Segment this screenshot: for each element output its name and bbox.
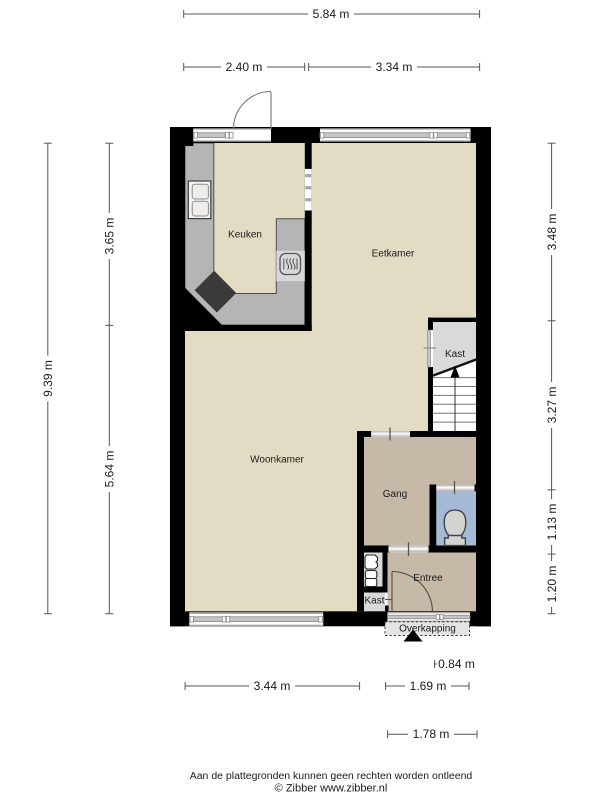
svg-text:5.84 m: 5.84 m [313, 7, 350, 21]
svg-text:Woonkamer: Woonkamer [250, 455, 304, 466]
svg-text:© Zibber www.zibber.nl: © Zibber www.zibber.nl [275, 783, 388, 795]
svg-text:3.44 m: 3.44 m [254, 679, 291, 693]
svg-text:3.34 m: 3.34 m [376, 60, 413, 74]
svg-text:Keuken: Keuken [228, 230, 262, 241]
svg-text:Kast: Kast [445, 349, 465, 360]
svg-text:9.39 m: 9.39 m [41, 360, 55, 397]
svg-text:Gang: Gang [383, 489, 407, 500]
svg-text:1.20 m: 1.20 m [545, 566, 559, 603]
svg-text:Overkapping: Overkapping [399, 624, 456, 635]
svg-text:3.48 m: 3.48 m [545, 214, 559, 251]
svg-text:Kast: Kast [364, 596, 384, 607]
svg-text:1.13 m: 1.13 m [545, 504, 559, 541]
svg-text:1.69 m: 1.69 m [410, 679, 447, 693]
svg-text:5.64 m: 5.64 m [103, 451, 117, 488]
svg-text:Eetkamer: Eetkamer [372, 249, 415, 260]
svg-text:1.78 m: 1.78 m [413, 727, 450, 741]
svg-text:Aan de plattegronden kunnen ge: Aan de plattegronden kunnen geen rechten… [190, 770, 473, 782]
svg-text:0.84 m: 0.84 m [438, 657, 475, 671]
svg-text:2.40 m: 2.40 m [226, 60, 263, 74]
svg-text:3.65 m: 3.65 m [103, 218, 117, 255]
svg-text:3.27 m: 3.27 m [545, 387, 559, 424]
svg-text:Entree: Entree [413, 573, 443, 584]
